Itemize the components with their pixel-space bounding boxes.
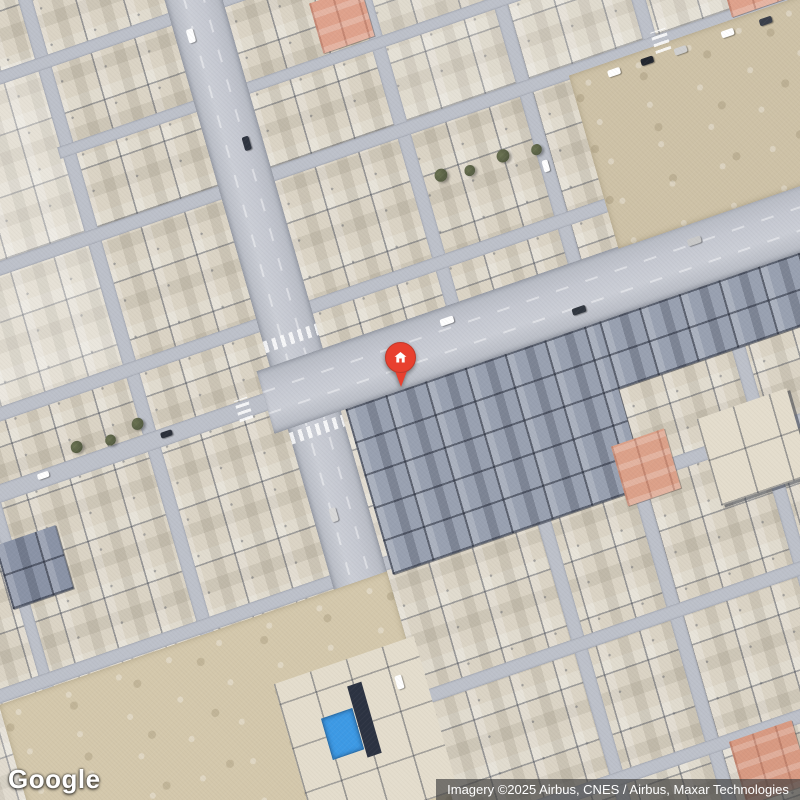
- tree: [433, 167, 449, 184]
- tree: [69, 439, 84, 454]
- attribution-text: Imagery ©2025 Airbus, CNES / Airbus, Max…: [447, 782, 789, 797]
- google-logo[interactable]: Google: [8, 764, 101, 795]
- marker-tail: [395, 371, 407, 387]
- attribution-bar: Imagery ©2025 Airbus, CNES / Airbus, Max…: [436, 779, 800, 800]
- home-location-marker[interactable]: [385, 342, 416, 392]
- tree: [463, 163, 476, 177]
- tree: [495, 148, 511, 165]
- map-canvas[interactable]: Google Imagery ©2025 Airbus, CNES / Airb…: [0, 0, 800, 800]
- home-icon: [392, 349, 409, 366]
- satellite-imagery-layer: [0, 0, 800, 800]
- marker-circle: [385, 342, 416, 373]
